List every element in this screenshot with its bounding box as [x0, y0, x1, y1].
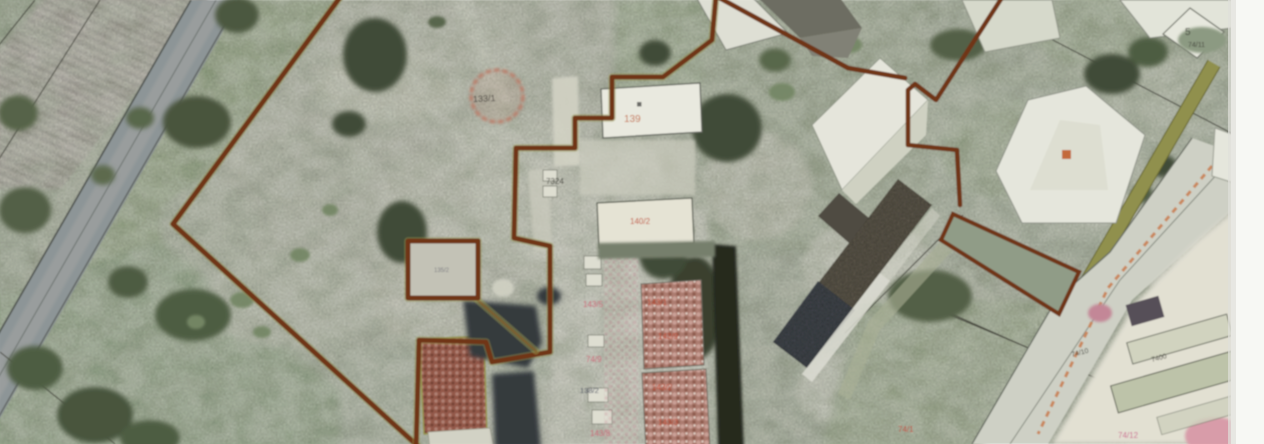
svg-text:7324: 7324 [546, 177, 564, 186]
svg-text:143/5: 143/5 [583, 300, 604, 309]
svg-text:138/2: 138/2 [580, 386, 599, 395]
svg-text:143/9: 143/9 [658, 332, 679, 341]
svg-text:74/11: 74/11 [1188, 42, 1205, 49]
svg-text:143/1: 143/1 [647, 298, 668, 307]
svg-text:74/12: 74/12 [1118, 431, 1139, 440]
svg-text:5: 5 [1185, 27, 1191, 38]
svg-text:74/1: 74/1 [898, 425, 914, 434]
svg-text:140/2: 140/2 [630, 217, 651, 226]
svg-text:135/2: 135/2 [434, 268, 450, 274]
svg-text:139: 139 [624, 114, 641, 125]
svg-text:143/8: 143/8 [590, 429, 611, 438]
svg-text:74/9: 74/9 [586, 355, 602, 364]
svg-text:143/3: 143/3 [658, 418, 679, 427]
svg-text:143/2: 143/2 [652, 383, 673, 392]
